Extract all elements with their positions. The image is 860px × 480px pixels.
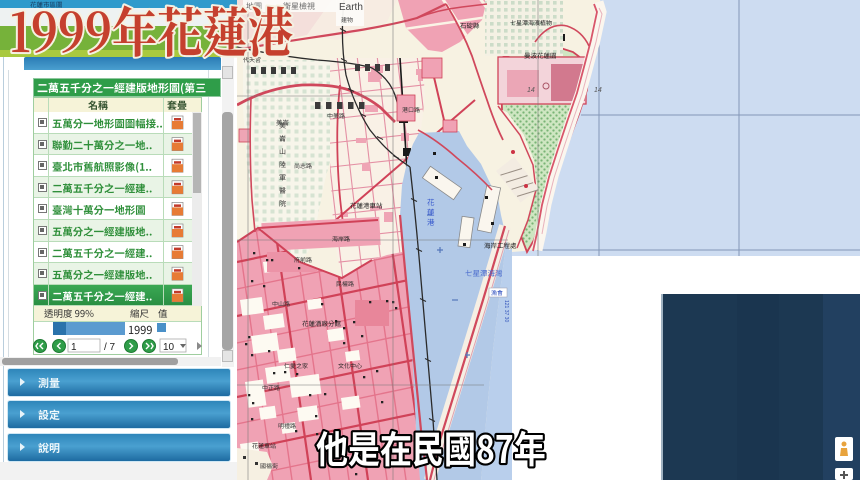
svg-text:Earth: Earth [339,2,363,13]
svg-text:10: 10 [163,342,175,353]
svg-text:14: 14 [594,87,602,94]
svg-text:121 37 30: 121 37 30 [503,300,509,322]
svg-text:/ 7: / 7 [104,342,116,353]
svg-text:1: 1 [71,342,77,353]
svg-text:14: 14 [527,87,535,94]
